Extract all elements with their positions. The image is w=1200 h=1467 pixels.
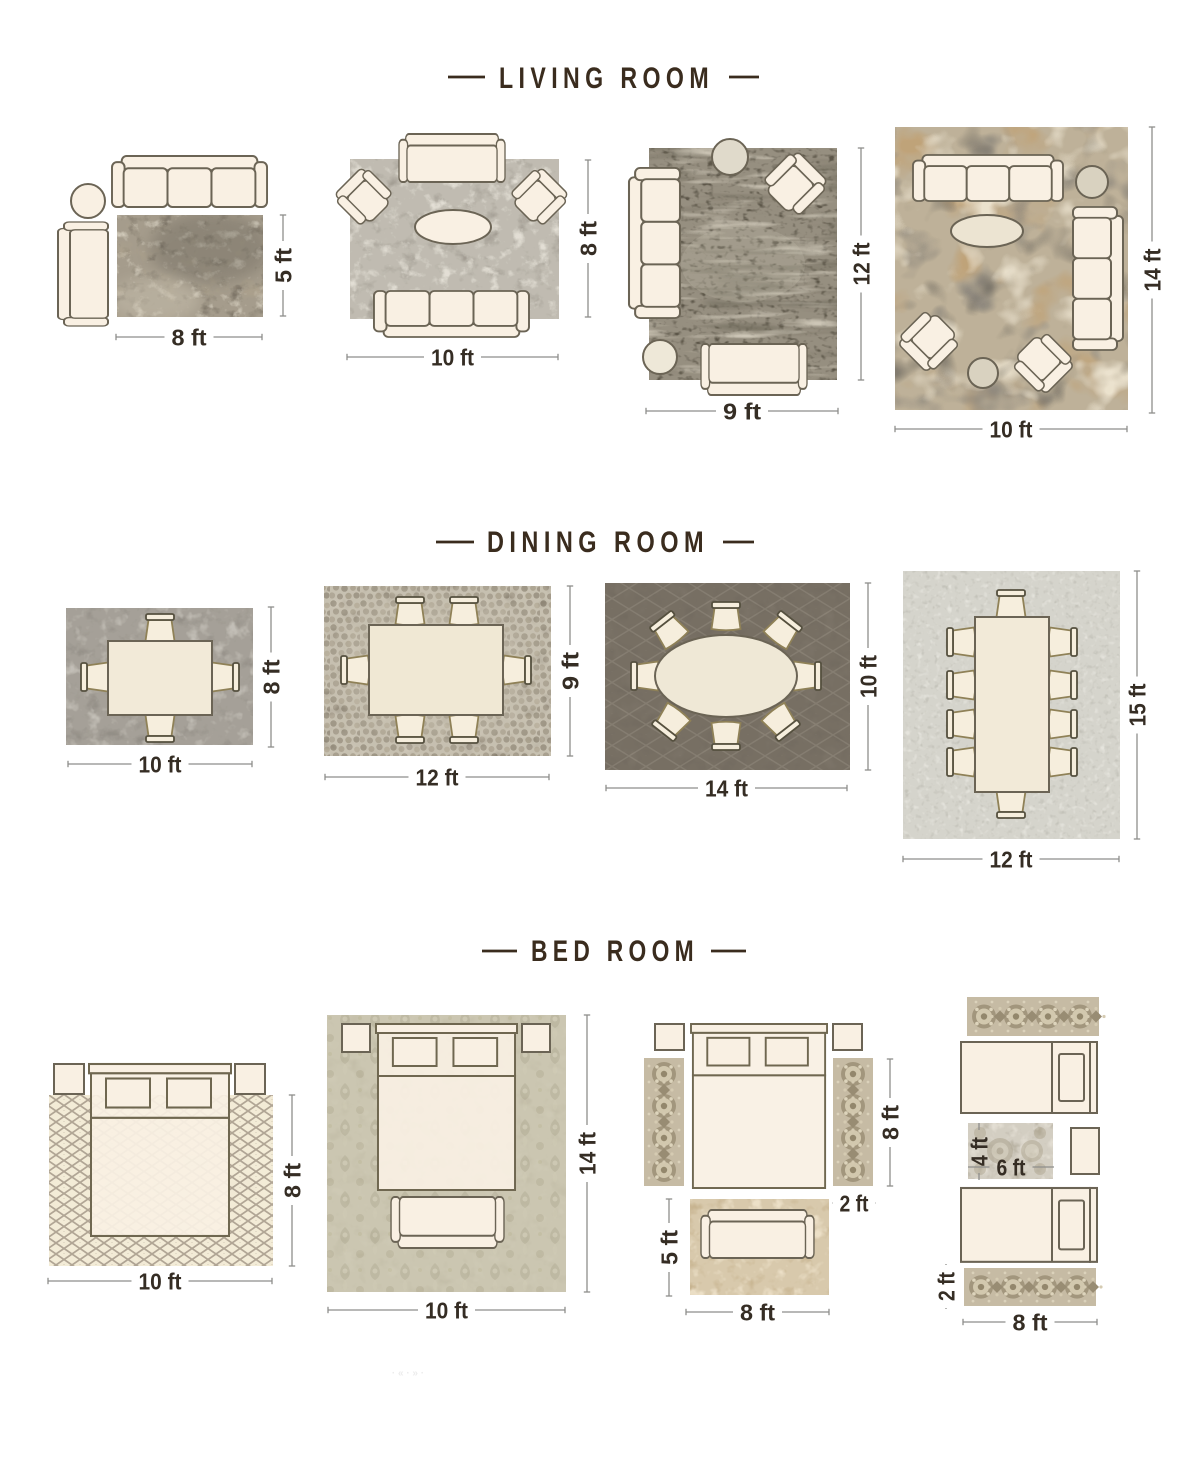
svg-text:8 ft: 8 ft [877,1105,903,1140]
svg-text:2 ft: 2 ft [933,1272,959,1301]
svg-text:2 ft: 2 ft [840,1190,869,1216]
svg-text:BED ROOM: BED ROOM [531,935,699,968]
svg-text:15 ft: 15 ft [1124,683,1150,726]
svg-text:5 ft: 5 ft [270,248,296,283]
svg-text:9 ft: 9 ft [723,398,761,424]
svg-text:9 ft: 9 ft [557,652,583,690]
svg-text:10 ft: 10 ft [855,655,881,698]
svg-text:DINING ROOM: DINING ROOM [487,526,709,559]
svg-text:10 ft: 10 ft [139,1268,182,1294]
svg-text:8 ft: 8 ft [258,659,284,694]
svg-text:5 ft: 5 ft [656,1230,682,1265]
svg-text:8 ft: 8 ft [1013,1309,1048,1335]
svg-text:10 ft: 10 ft [431,344,474,370]
svg-text:12 ft: 12 ft [848,242,874,285]
svg-text:LIVING ROOM: LIVING ROOM [499,62,714,95]
svg-text:8 ft: 8 ft [279,1163,305,1198]
svg-text:10 ft: 10 ft [139,751,182,777]
svg-text:6 ft: 6 ft [997,1154,1026,1180]
svg-text:8 ft: 8 ft [740,1299,775,1325]
svg-text:14 ft: 14 ft [574,1132,600,1175]
svg-text:10 ft: 10 ft [425,1297,468,1323]
svg-text:12 ft: 12 ft [990,846,1033,872]
svg-text:8 ft: 8 ft [172,324,207,350]
svg-text:8 ft: 8 ft [575,221,601,256]
svg-text:14 ft: 14 ft [1139,248,1165,291]
svg-text:14 ft: 14 ft [705,775,748,801]
svg-text:4 ft: 4 ft [966,1137,992,1166]
svg-text:10 ft: 10 ft [990,416,1033,442]
svg-text:· « · » ·: · « · » · [392,1368,424,1379]
svg-text:12 ft: 12 ft [416,764,459,790]
